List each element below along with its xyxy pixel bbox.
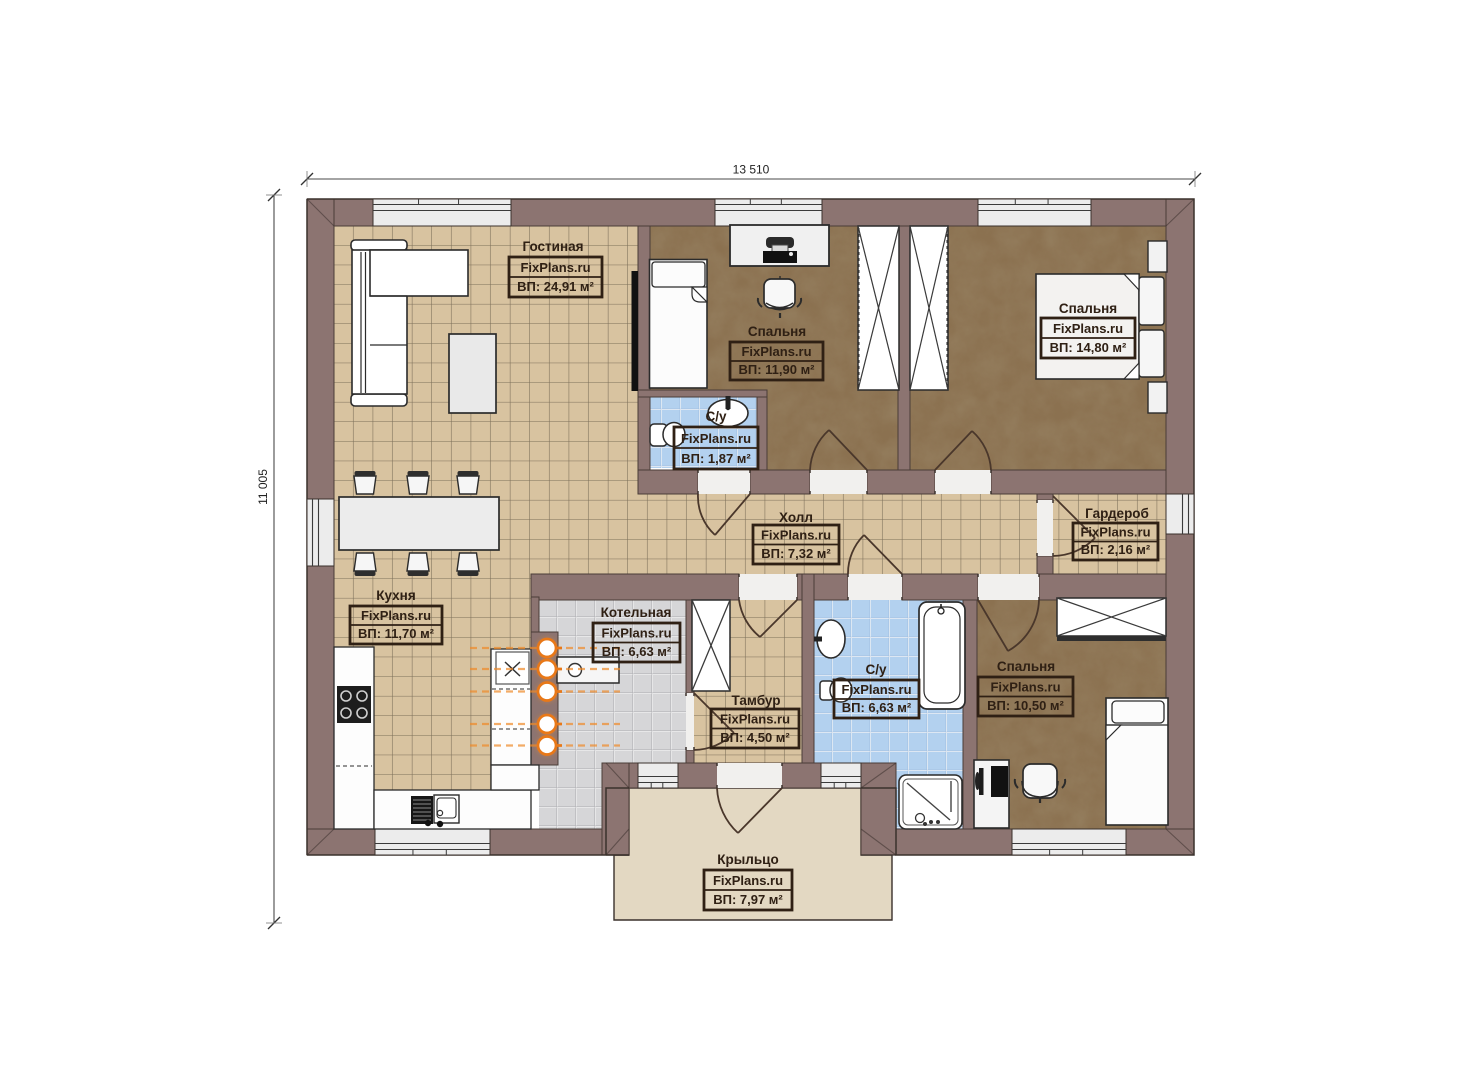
svg-text:FixPlans.ru: FixPlans.ru: [601, 626, 671, 641]
svg-text:Гардероб: Гардероб: [1085, 506, 1149, 521]
svg-text:FixPlans.ru: FixPlans.ru: [681, 431, 751, 446]
svg-text:FixPlans.ru: FixPlans.ru: [761, 528, 831, 543]
svg-text:ВП: 14,80 м²: ВП: 14,80 м²: [1050, 340, 1127, 355]
svg-text:С/у: С/у: [865, 662, 887, 677]
svg-text:13 510: 13 510: [733, 163, 770, 177]
svg-text:ВП: 11,90 м²: ВП: 11,90 м²: [738, 362, 815, 377]
svg-text:FixPlans.ru: FixPlans.ru: [713, 873, 783, 888]
svg-text:ВП: 4,50 м²: ВП: 4,50 м²: [720, 730, 790, 745]
svg-text:ВП: 6,63 м²: ВП: 6,63 м²: [842, 700, 912, 715]
svg-text:ВП: 24,91 м²: ВП: 24,91 м²: [517, 279, 594, 294]
svg-text:Спальня: Спальня: [1059, 301, 1117, 316]
svg-text:Гостиная: Гостиная: [522, 239, 583, 254]
svg-text:FixPlans.ru: FixPlans.ru: [1053, 321, 1123, 336]
svg-text:Кухня: Кухня: [376, 588, 415, 603]
svg-text:FixPlans.ru: FixPlans.ru: [990, 680, 1060, 695]
svg-text:FixPlans.ru: FixPlans.ru: [1080, 525, 1150, 540]
svg-text:Тамбур: Тамбур: [732, 693, 781, 708]
svg-text:11 005: 11 005: [256, 469, 270, 505]
svg-text:Холл: Холл: [779, 510, 813, 525]
svg-text:FixPlans.ru: FixPlans.ru: [361, 608, 431, 623]
svg-text:ВП: 7,32 м²: ВП: 7,32 м²: [761, 546, 831, 561]
svg-text:FixPlans.ru: FixPlans.ru: [720, 712, 790, 727]
svg-text:FixPlans.ru: FixPlans.ru: [741, 344, 811, 359]
svg-text:ВП: 2,16 м²: ВП: 2,16 м²: [1081, 542, 1151, 557]
svg-text:Спальня: Спальня: [997, 659, 1055, 674]
svg-text:Крыльцо: Крыльцо: [717, 852, 778, 867]
svg-text:Спальня: Спальня: [748, 324, 806, 339]
svg-text:Котельная: Котельная: [601, 605, 672, 620]
svg-text:С/у: С/у: [705, 409, 727, 424]
svg-text:FixPlans.ru: FixPlans.ru: [520, 260, 590, 275]
svg-text:ВП: 7,97 м²: ВП: 7,97 м²: [713, 892, 783, 907]
svg-text:FixPlans.ru: FixPlans.ru: [841, 682, 911, 697]
svg-text:ВП: 6,63 м²: ВП: 6,63 м²: [602, 644, 672, 659]
svg-text:ВП: 1,87 м²: ВП: 1,87 м²: [681, 451, 751, 466]
svg-text:ВП: 11,70 м²: ВП: 11,70 м²: [358, 626, 435, 641]
svg-text:ВП: 10,50 м²: ВП: 10,50 м²: [987, 698, 1064, 713]
